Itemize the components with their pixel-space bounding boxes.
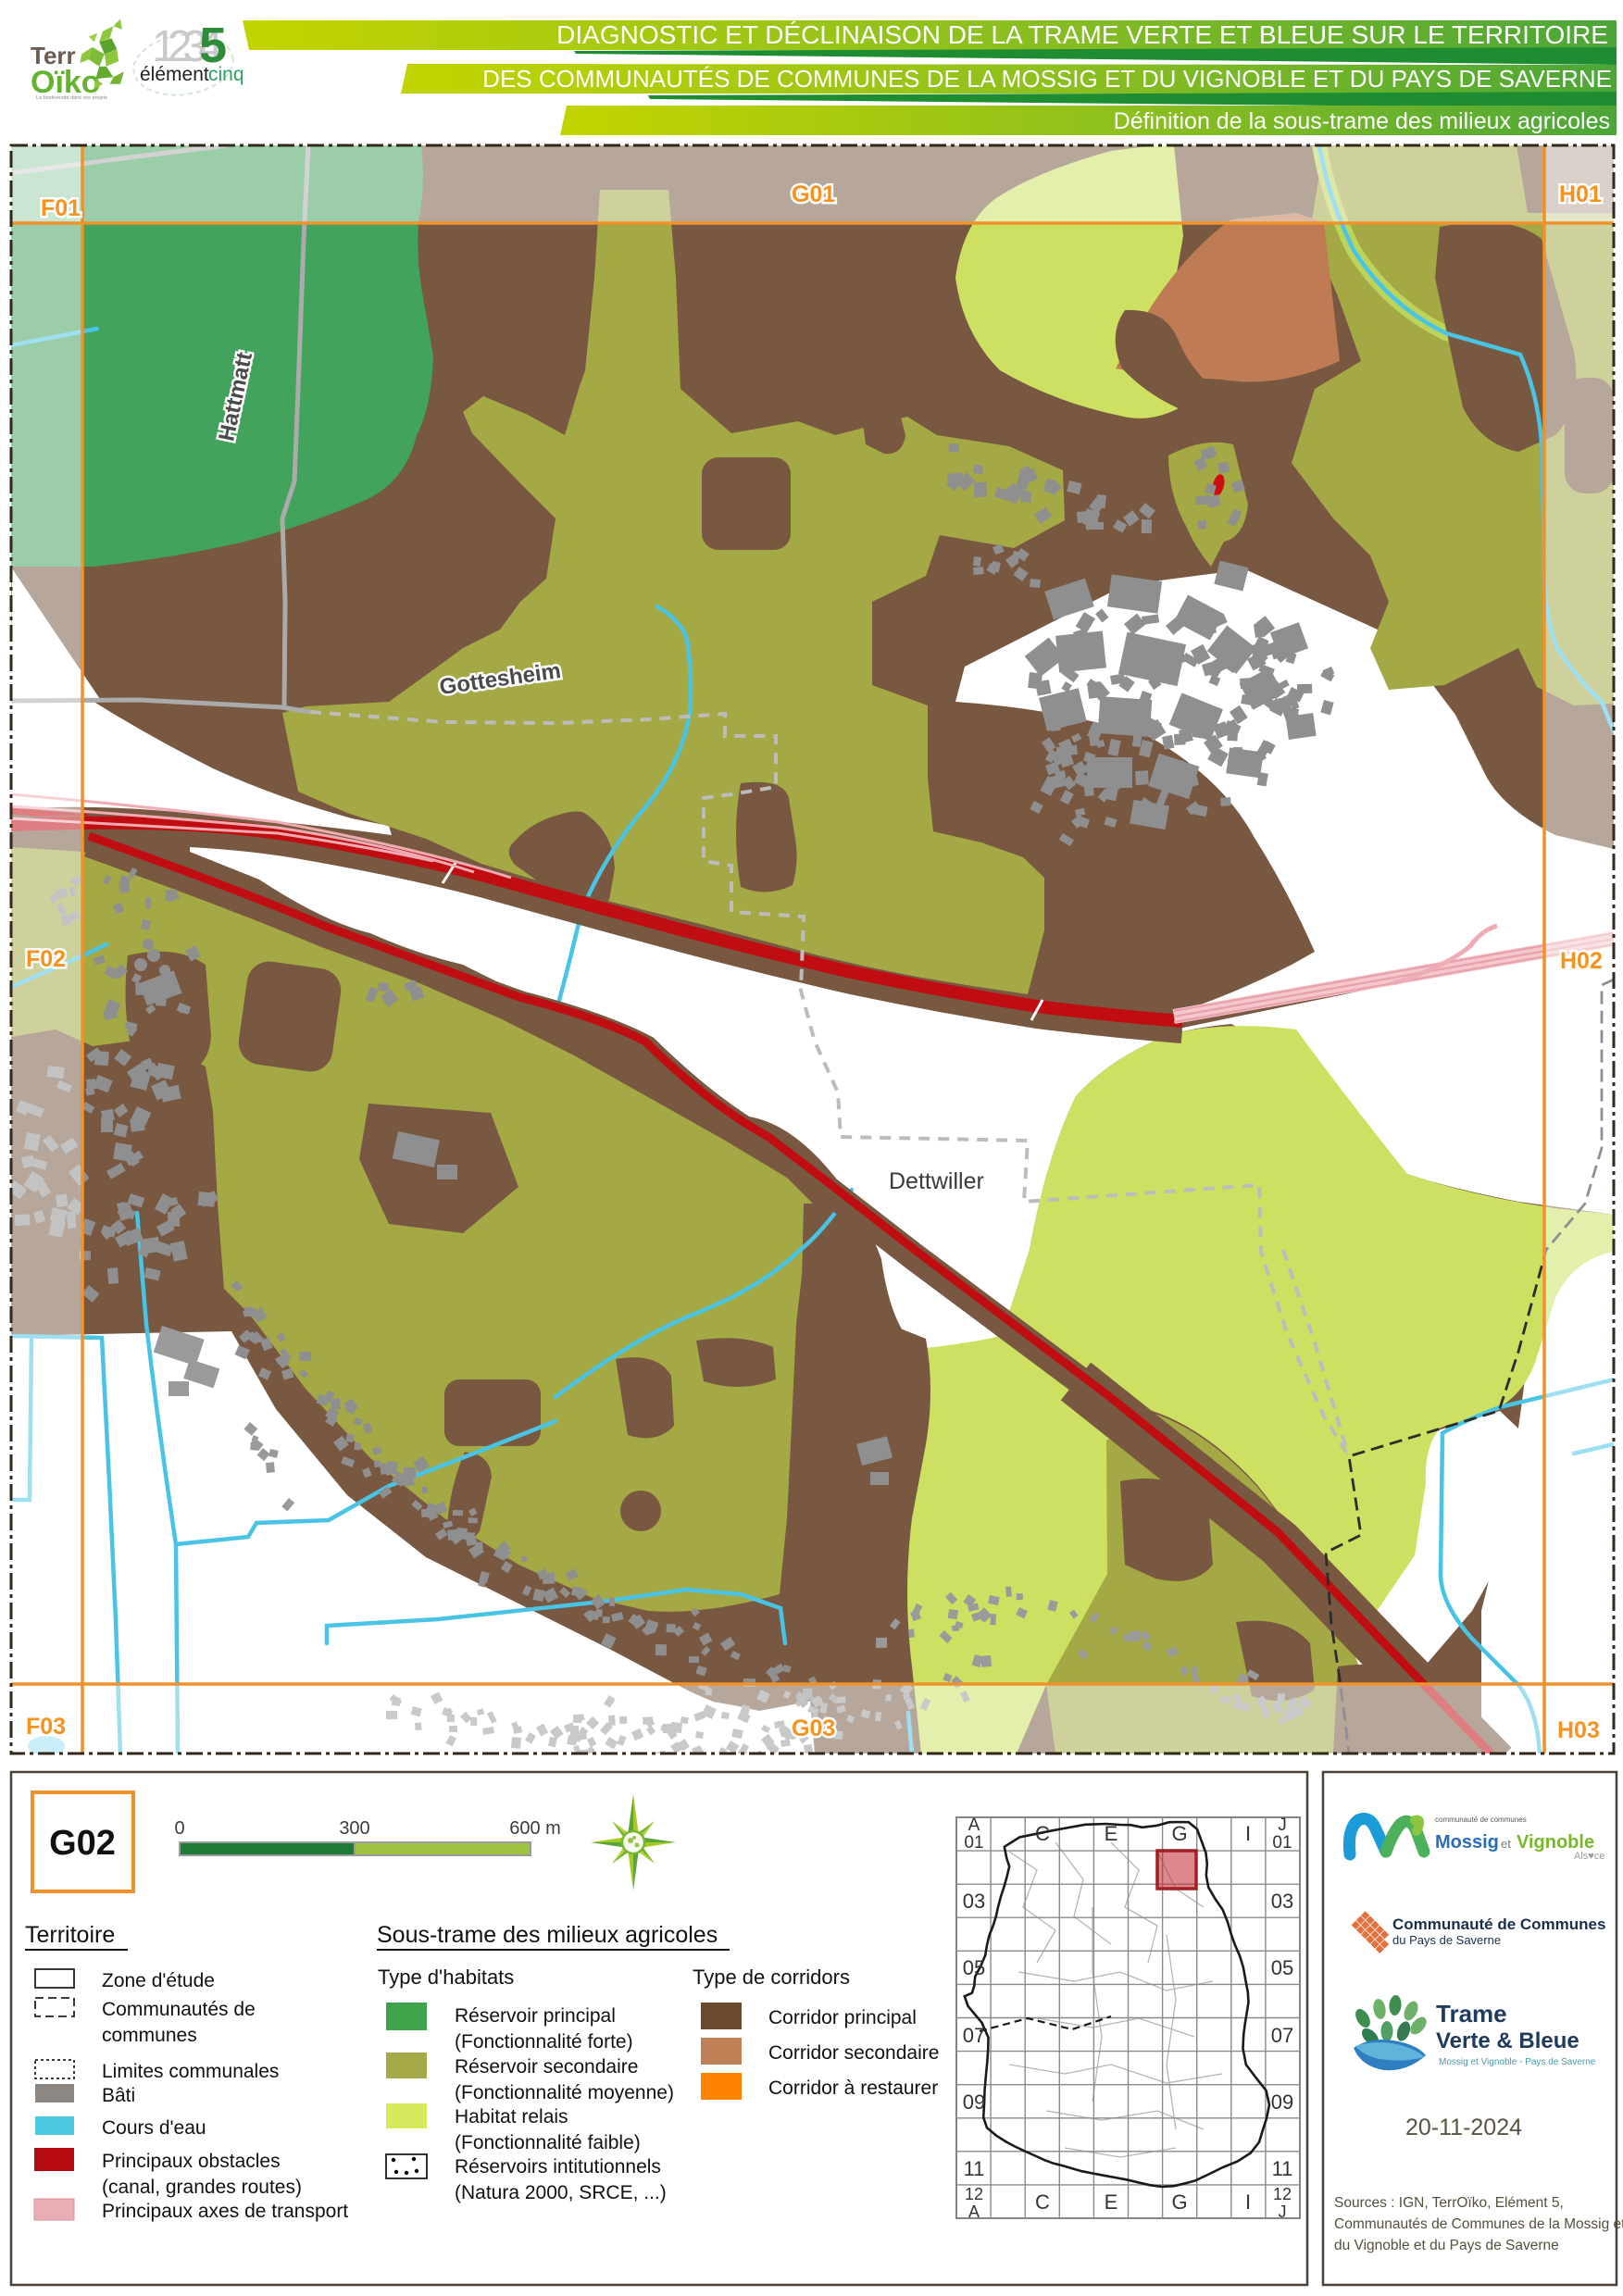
svg-text:F01: F01 — [41, 195, 81, 221]
svg-text:Sous-trame des milieux agricol: Sous-trame des milieux agricoles — [377, 1922, 718, 1948]
svg-text:Als♥ce: Als♥ce — [1574, 1851, 1604, 1862]
svg-text:Trame: Trame — [1436, 2000, 1507, 2028]
svg-text:I: I — [1245, 2190, 1251, 2214]
svg-text:11: 11 — [1272, 2157, 1293, 2180]
svg-text:C: C — [1035, 2190, 1050, 2214]
svg-text:communauté de communes: communauté de communes — [1435, 1816, 1527, 1824]
svg-text:0: 0 — [174, 1818, 184, 1839]
svg-text:07: 07 — [963, 2024, 985, 2047]
svg-text:(Fonctionnalité moyenne): (Fonctionnalité moyenne) — [455, 2082, 674, 2103]
svg-text:J: J — [1279, 2202, 1287, 2221]
svg-text:09: 09 — [1271, 2090, 1293, 2114]
svg-text:élément: élément — [140, 64, 209, 85]
svg-text:Réservoirs intitutionnels: Réservoirs intitutionnels — [455, 2156, 661, 2177]
svg-text:09: 09 — [963, 2090, 985, 2114]
svg-text:Mossig et Vignoble - Pays de S: Mossig et Vignoble - Pays de Saverne — [1439, 2057, 1596, 2067]
svg-text:Bâti: Bâti — [102, 2085, 135, 2106]
svg-text:Sources : IGN, TerrOïko, Eléme: Sources : IGN, TerrOïko, Elément 5, — [1334, 2195, 1564, 2211]
svg-text:I: I — [1245, 1822, 1251, 1845]
svg-text:G: G — [1171, 2190, 1187, 2214]
svg-text:DIAGNOSTIC ET DÉCLINAISON DE L: DIAGNOSTIC ET DÉCLINAISON DE LA TRAME VE… — [556, 20, 1608, 49]
svg-text:du Vignoble et du Pays de Save: du Vignoble et du Pays de Saverne — [1334, 2238, 1559, 2253]
svg-text:DES COMMUNAUTÉS DE COMMUNES DE: DES COMMUNAUTÉS DE COMMUNES DE LA MOSSIG… — [482, 65, 1612, 93]
svg-text:du Pays de Saverne: du Pays de Saverne — [1392, 1933, 1501, 1947]
svg-text:H01: H01 — [1559, 181, 1602, 207]
svg-text:12: 12 — [1273, 2185, 1292, 2203]
svg-text:Habitat relais: Habitat relais — [455, 2106, 568, 2128]
svg-text:Cours d'eau: Cours d'eau — [102, 2117, 206, 2139]
svg-text:Réservoir principal: Réservoir principal — [455, 2005, 616, 2027]
svg-text:Dettwiller: Dettwiller — [889, 1168, 984, 1194]
svg-text:Corridor à restaurer: Corridor à restaurer — [768, 2078, 938, 2099]
svg-text:cinq: cinq — [208, 64, 244, 85]
svg-text:(canal, grandes routes): (canal, grandes routes) — [102, 2177, 302, 2198]
svg-text:05: 05 — [963, 1956, 985, 1979]
svg-text:Réservoir secondaire: Réservoir secondaire — [455, 2056, 638, 2078]
svg-text:03: 03 — [1271, 1890, 1293, 1913]
svg-text:C: C — [1035, 1822, 1050, 1845]
svg-text:A: A — [968, 2202, 980, 2221]
svg-text:600 m: 600 m — [509, 1818, 561, 1839]
svg-text:20-11-2024: 20-11-2024 — [1405, 2115, 1522, 2140]
svg-text:Corridor principal: Corridor principal — [768, 2007, 917, 2028]
svg-text:Communautés de Communes de la: Communautés de Communes de la Mossig et — [1334, 2216, 1623, 2232]
svg-text:F03: F03 — [26, 1714, 66, 1740]
svg-text:05: 05 — [1271, 1956, 1293, 1979]
svg-text:et: et — [1501, 1837, 1511, 1851]
svg-text:communes: communes — [102, 2025, 197, 2046]
svg-text:La biodiversité dans vos proje: La biodiversité dans vos projets — [36, 95, 107, 101]
svg-text:(Fonctionnalité forte): (Fonctionnalité forte) — [455, 2031, 633, 2053]
svg-text:11: 11 — [964, 2157, 985, 2180]
svg-text:H02: H02 — [1560, 948, 1603, 974]
svg-text:Verte & Bleue: Verte & Bleue — [1436, 2028, 1579, 2053]
svg-text:H03: H03 — [1557, 1717, 1600, 1743]
svg-text:Corridor secondaire: Corridor secondaire — [768, 2042, 939, 2064]
svg-text:01: 01 — [964, 1833, 983, 1853]
svg-text:E: E — [1105, 2190, 1118, 2214]
svg-text:(Natura 2000, SRCE, ...): (Natura 2000, SRCE, ...) — [455, 2182, 667, 2203]
svg-text:Mossig: Mossig — [1435, 1832, 1499, 1853]
svg-text:Type de corridors: Type de corridors — [693, 1965, 850, 1989]
svg-text:Communautés de: Communautés de — [102, 1999, 256, 2020]
svg-text:F02: F02 — [26, 946, 66, 972]
svg-text:12: 12 — [965, 2185, 983, 2203]
svg-text:Limites communales: Limites communales — [102, 2061, 279, 2082]
svg-text:Communauté de Communes: Communauté de Communes — [1392, 1915, 1605, 1933]
svg-text:Territoire: Territoire — [25, 1922, 115, 1948]
svg-text:Principaux axes de transport: Principaux axes de transport — [102, 2201, 348, 2222]
svg-text:E: E — [1105, 1822, 1118, 1845]
svg-text:G03: G03 — [792, 1716, 835, 1741]
svg-text:Type d'habitats: Type d'habitats — [378, 1965, 514, 1989]
svg-text:07: 07 — [1271, 2024, 1293, 2047]
svg-text:Vignoble: Vignoble — [1517, 1832, 1594, 1853]
svg-text:01: 01 — [1272, 1833, 1292, 1853]
svg-text:(Fonctionnalité faible): (Fonctionnalité faible) — [455, 2132, 641, 2153]
svg-text:G01: G01 — [792, 181, 835, 207]
svg-text:Principaux obstacles: Principaux obstacles — [102, 2151, 281, 2172]
svg-text:300: 300 — [339, 1818, 369, 1839]
svg-text:G: G — [1171, 1822, 1187, 1845]
svg-text:Définition de la sous-trame de: Définition de la sous-trame des milieux … — [1114, 108, 1610, 134]
svg-text:Zone d'étude: Zone d'étude — [102, 1970, 215, 1991]
svg-text:A: A — [968, 1816, 980, 1835]
svg-text:J: J — [1278, 1816, 1287, 1835]
svg-text:G02: G02 — [49, 1824, 116, 1863]
svg-text:03: 03 — [963, 1890, 985, 1913]
